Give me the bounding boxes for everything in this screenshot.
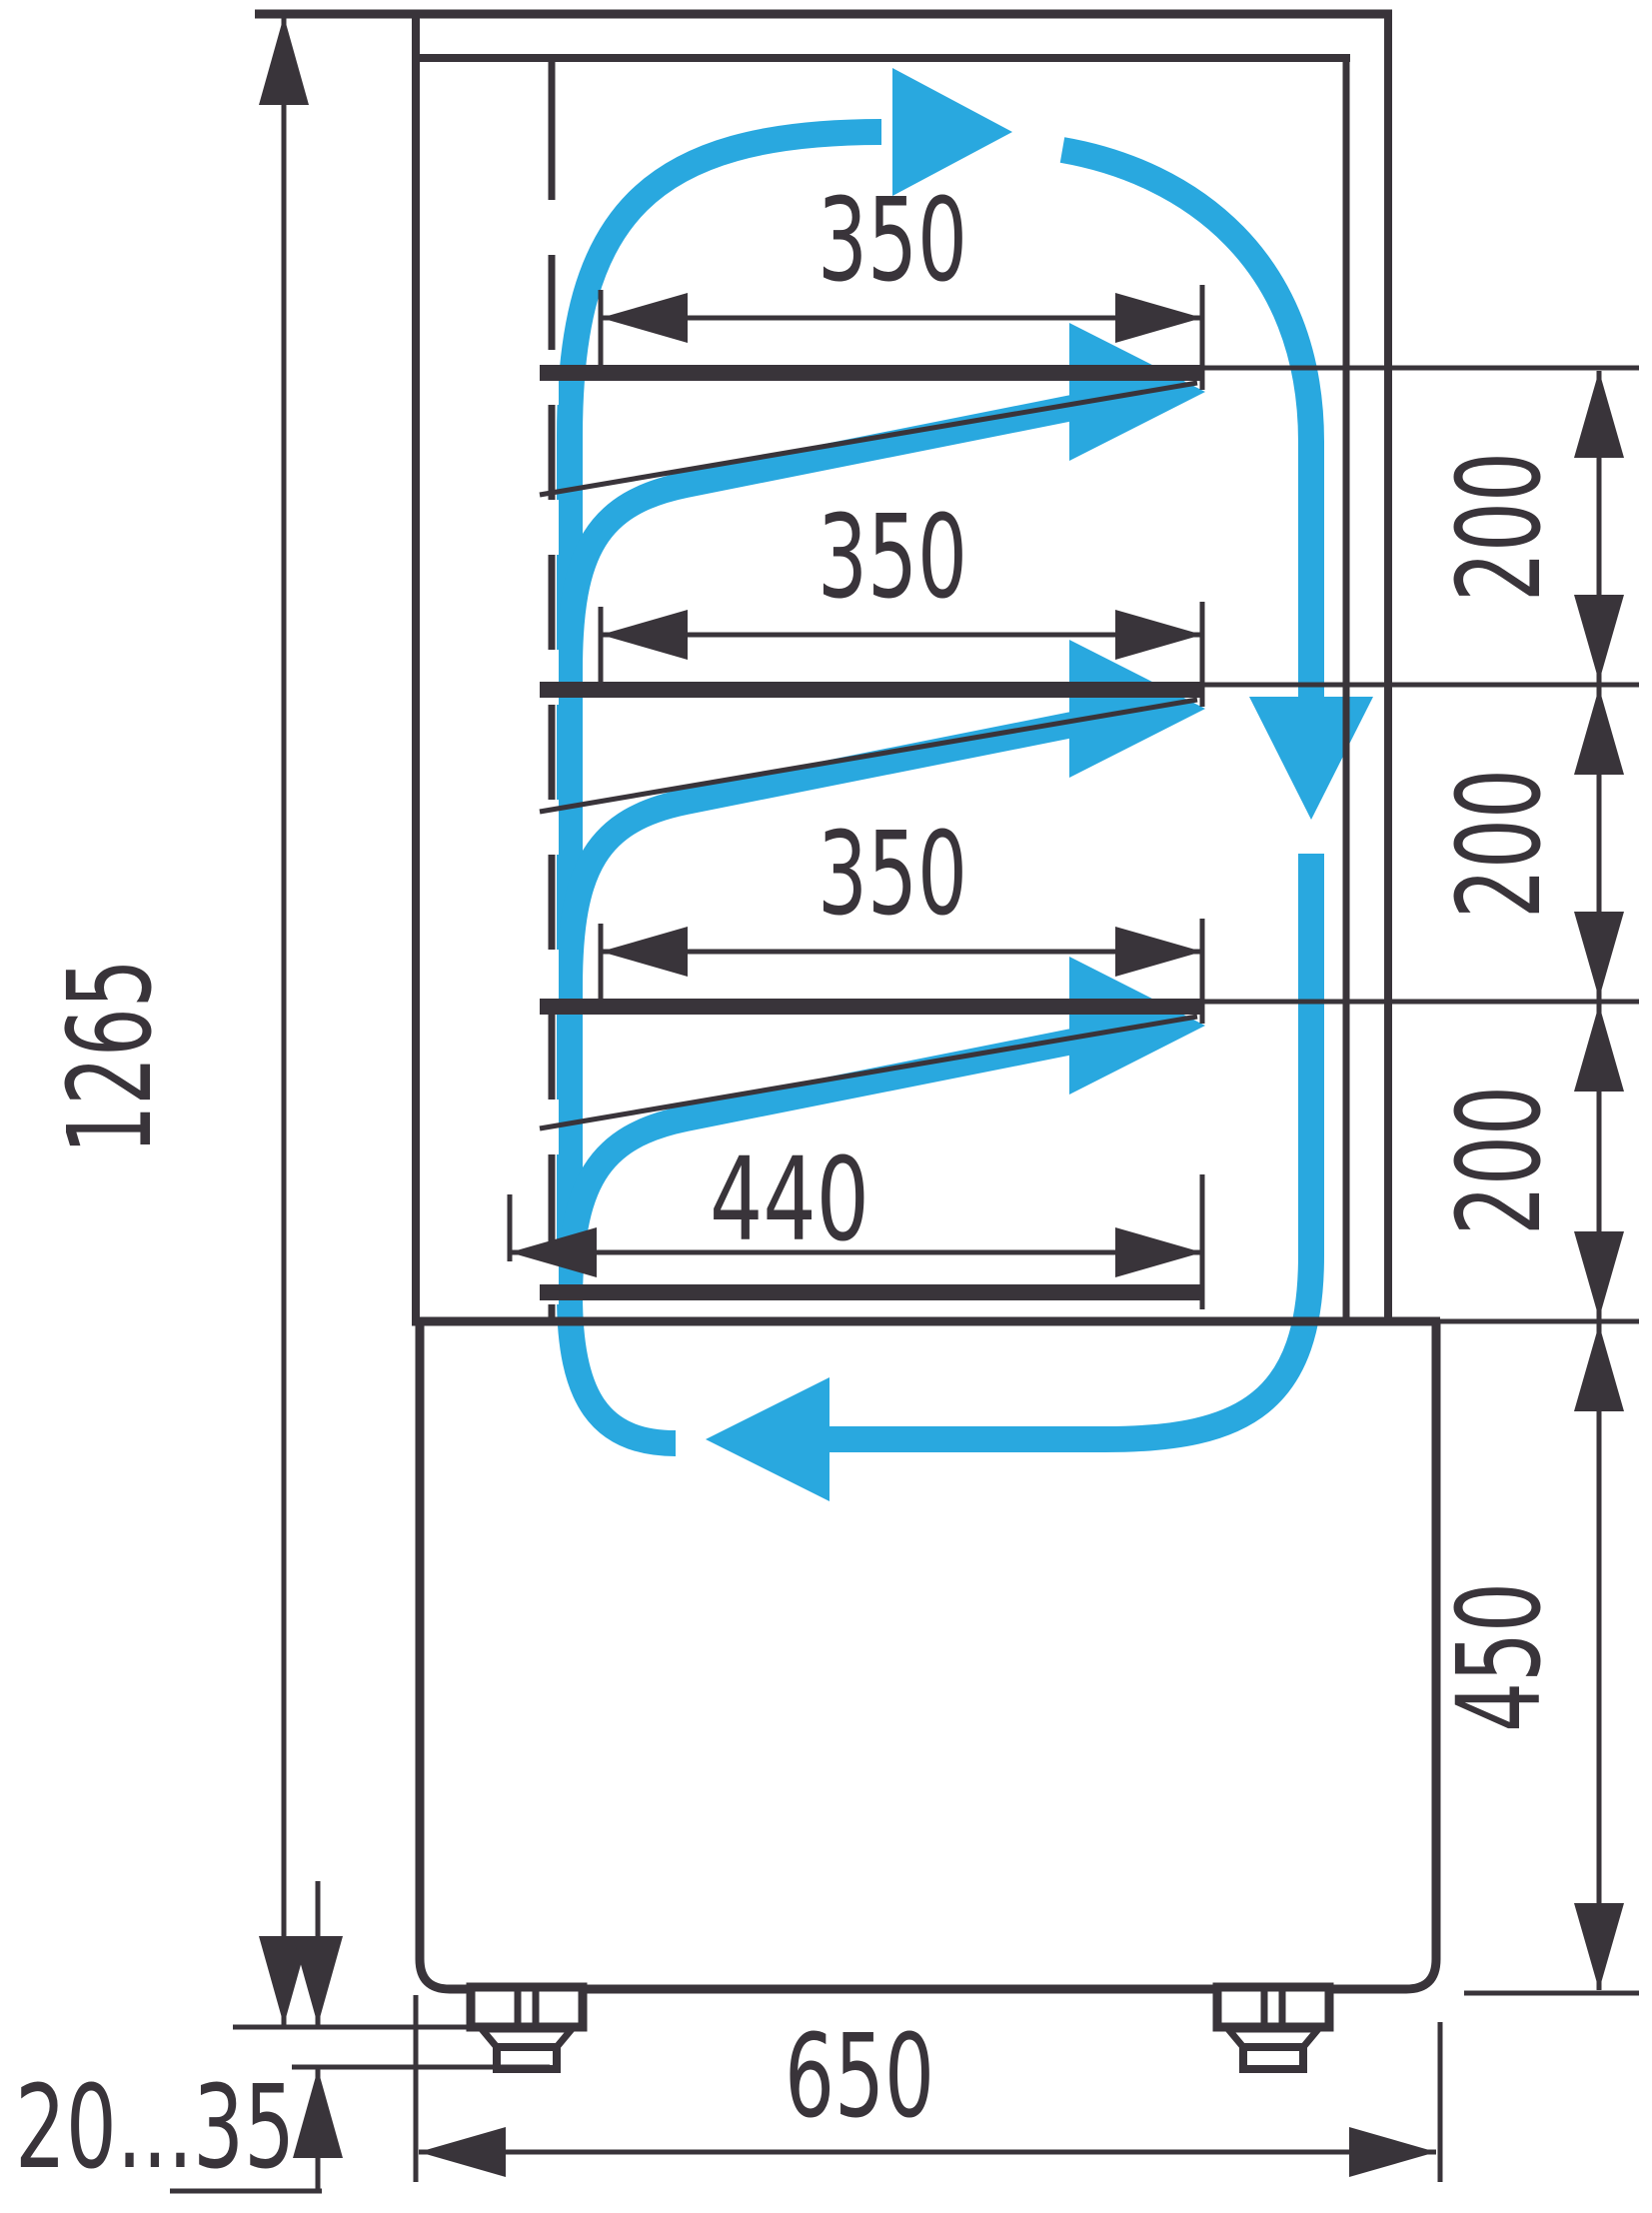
label-foot-range: 20...35 bbox=[15, 2061, 295, 2195]
arrow-200-2-down-icon bbox=[1574, 912, 1624, 999]
arrow-440-right-icon bbox=[1115, 1227, 1202, 1277]
dimension-labels: 1265 350 350 350 440 200 200 200 450 650… bbox=[15, 174, 1567, 2195]
airflow-arrow-down-icon bbox=[1249, 697, 1373, 820]
arrow-200-3-down-icon bbox=[1574, 1231, 1624, 1318]
label-shelf-depth-1: 350 bbox=[818, 174, 967, 308]
arrow-200-1-down-icon bbox=[1574, 595, 1624, 682]
shelf-1 bbox=[540, 365, 1202, 381]
arrow-350-2-right-icon bbox=[1115, 610, 1202, 660]
arrow-200-2-up-icon bbox=[1574, 688, 1624, 775]
label-shelf-depth-3: 350 bbox=[818, 808, 967, 942]
arrow-350-3-right-icon bbox=[1115, 927, 1202, 977]
arrow-450-up-icon bbox=[1574, 1324, 1624, 1411]
label-deck-depth: 440 bbox=[710, 1133, 869, 1267]
arrow-350-2-left-icon bbox=[601, 610, 688, 660]
label-shelf-spacing-3: 200 bbox=[1433, 1086, 1567, 1235]
label-shelf-spacing-1: 200 bbox=[1433, 452, 1567, 602]
label-shelf-depth-2: 350 bbox=[818, 491, 967, 625]
label-base-height: 450 bbox=[1433, 1582, 1567, 1732]
arrow-200-3-up-icon bbox=[1574, 1005, 1624, 1092]
arrow-1265-up-icon bbox=[259, 16, 309, 105]
arrow-650-left-icon bbox=[419, 2127, 506, 2177]
shelf-3 bbox=[540, 999, 1202, 1015]
arrow-2035-down-icon bbox=[293, 1936, 343, 2025]
label-overall-height: 1265 bbox=[44, 960, 178, 1154]
arrow-650-right-icon bbox=[1349, 2127, 1436, 2177]
arrow-350-3-left-icon bbox=[601, 927, 688, 977]
dimension-lines bbox=[170, 18, 1639, 2191]
airflow-arrow-return-icon bbox=[706, 1377, 829, 1501]
arrow-350-1-left-icon bbox=[601, 293, 688, 343]
arrow-450-down-icon bbox=[1574, 1903, 1624, 1990]
display-case-drawing: 1265 350 350 350 440 200 200 200 450 650… bbox=[0, 0, 1652, 2213]
arrow-2035-up-icon bbox=[293, 2069, 343, 2158]
adjustable-foot-right bbox=[1217, 1987, 1329, 2069]
shelf-2 bbox=[540, 682, 1202, 698]
arrow-350-1-right-icon bbox=[1115, 293, 1202, 343]
label-shelf-spacing-2: 200 bbox=[1433, 769, 1567, 919]
dimension-arrowheads bbox=[259, 16, 1624, 2177]
label-base-depth: 650 bbox=[785, 2010, 934, 2144]
bottom-deck bbox=[540, 1284, 1202, 1300]
arrow-200-1-up-icon bbox=[1574, 371, 1624, 458]
cabinet-outline bbox=[420, 1321, 1436, 1989]
